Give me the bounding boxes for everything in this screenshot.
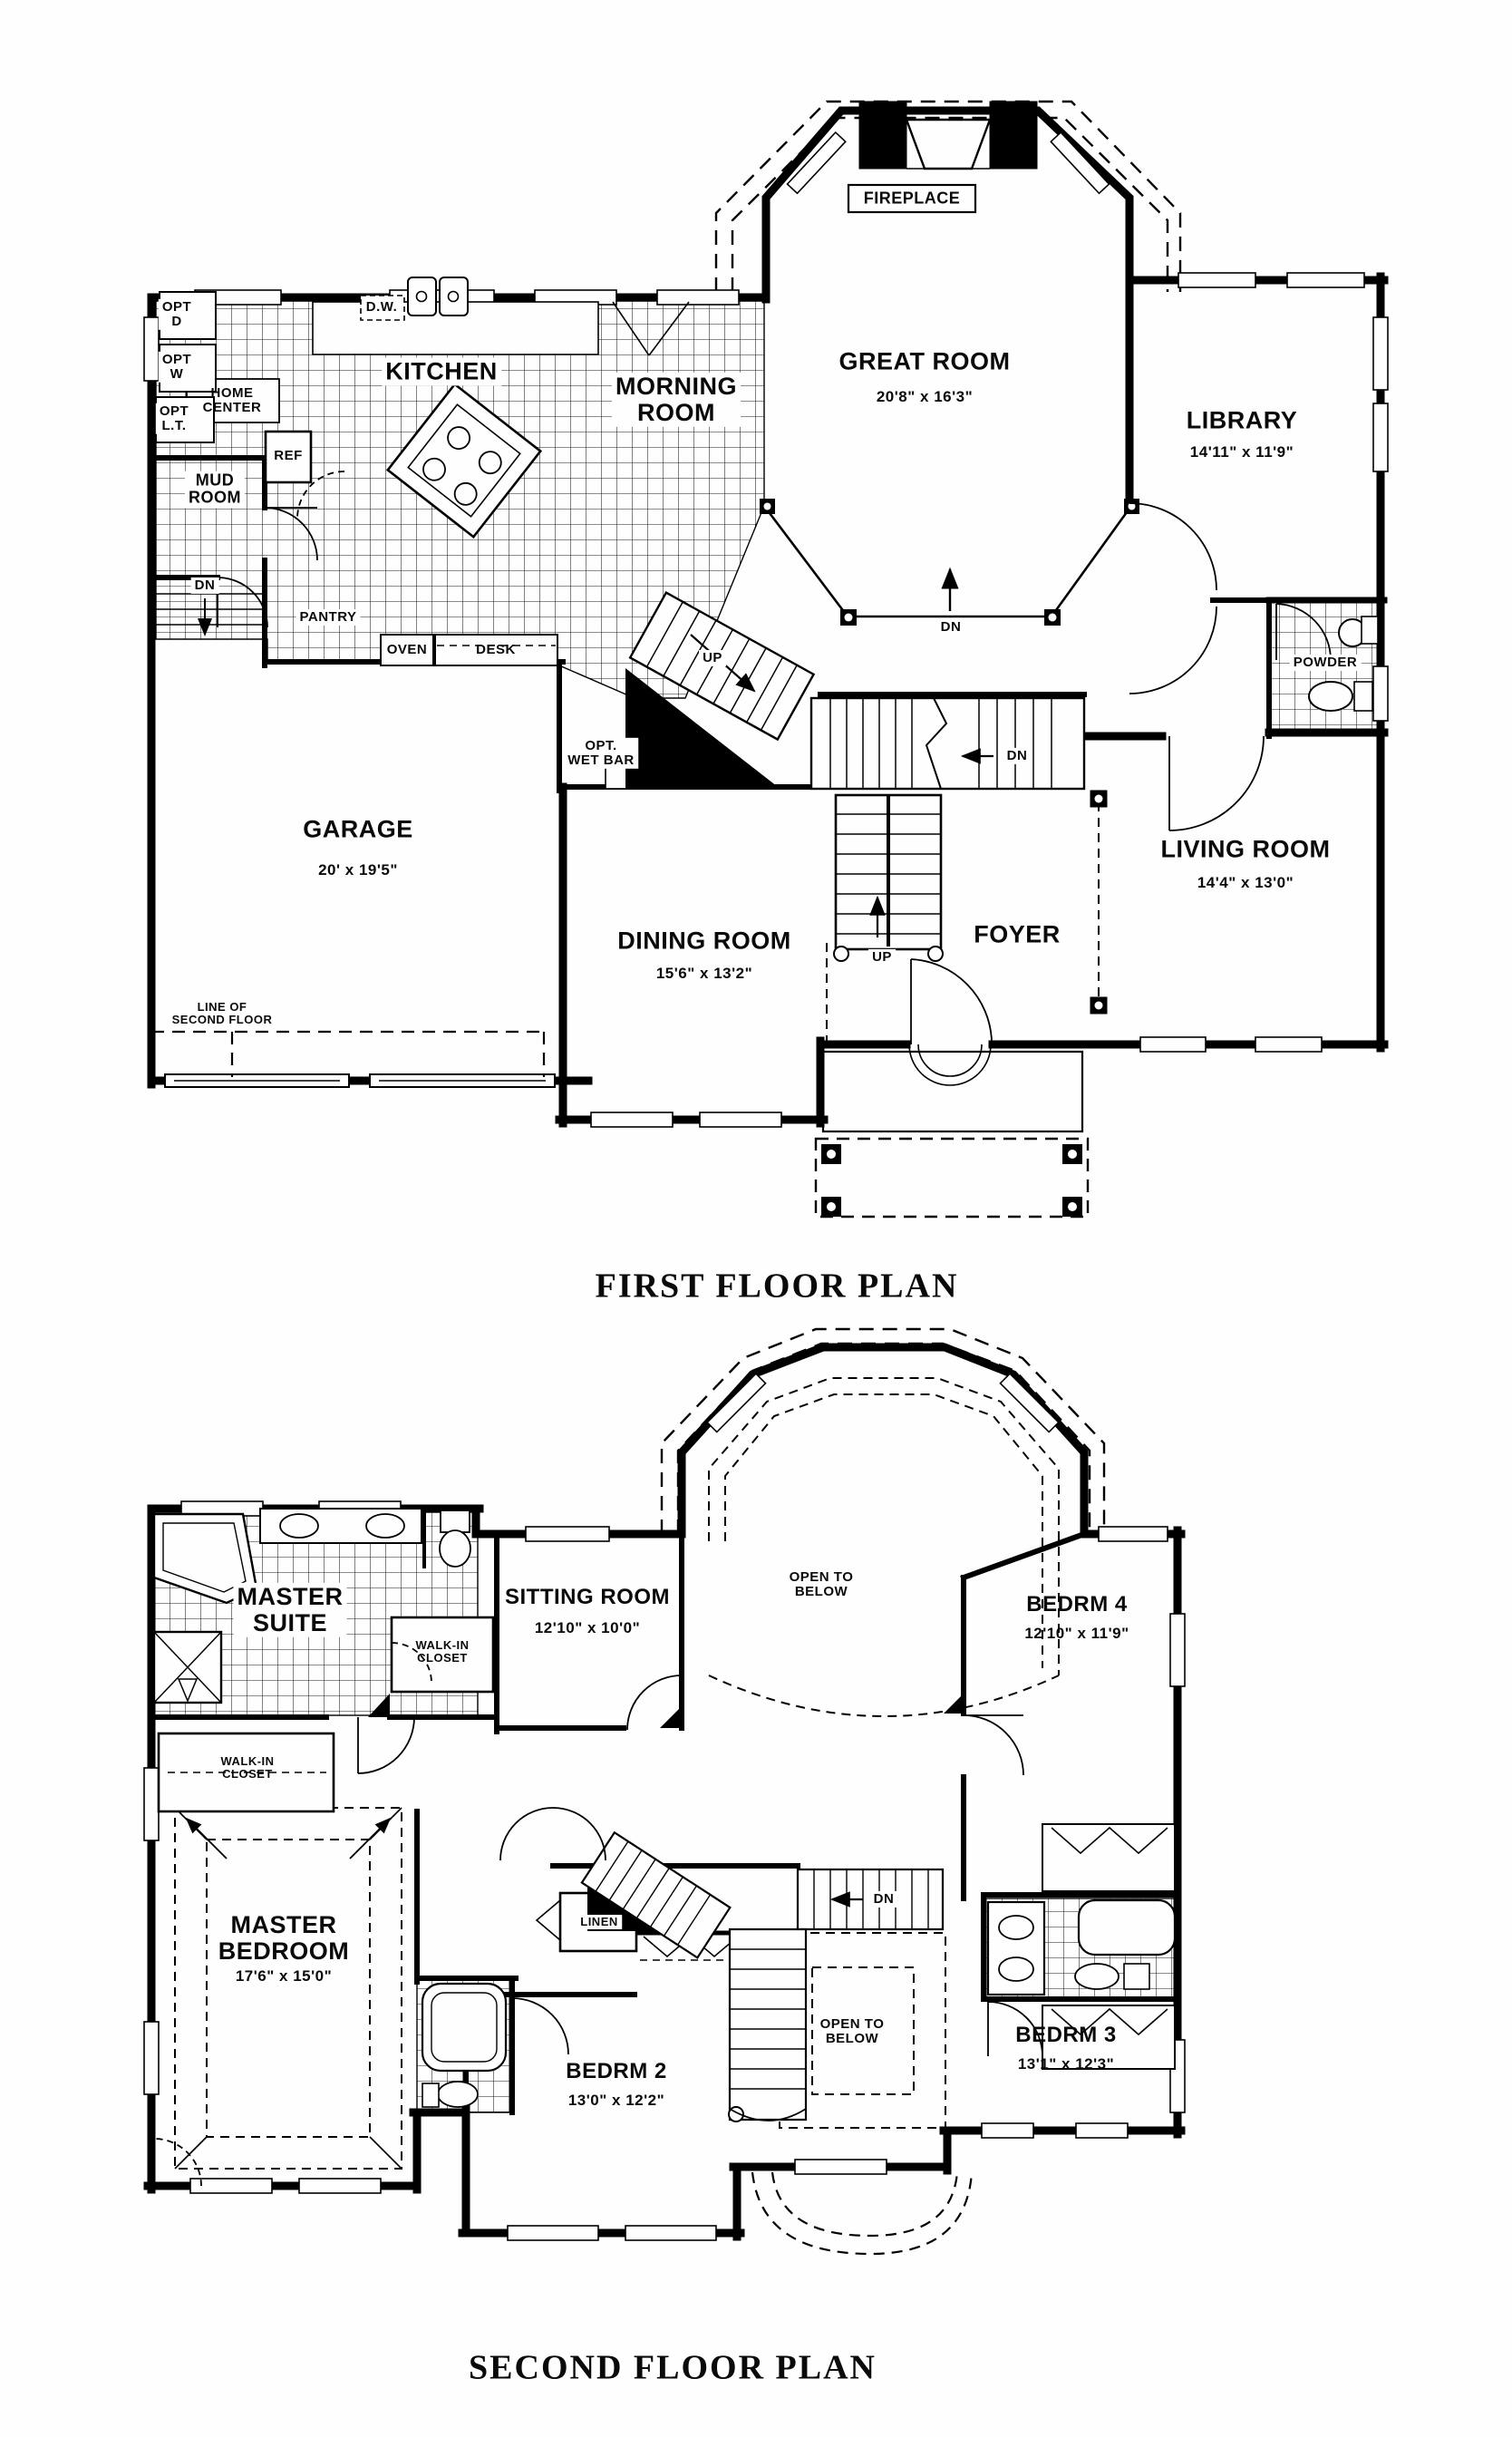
- label-opt-laundry-tub: OPT L.T.: [156, 403, 192, 434]
- label-dn-mud: DN: [191, 578, 219, 594]
- label-opt-dryer: OPT D: [159, 299, 195, 330]
- second-floor-plan-title: SECOND FLOOR PLAN: [469, 2349, 877, 2386]
- great-room-edge: [760, 499, 1139, 626]
- label-walk-in-closet-upper: WALK-IN CLOSET: [415, 1639, 469, 1665]
- label-great-room-dims: 20'8" x 16'3": [877, 389, 973, 405]
- label-master-bedroom-dims: 17'6" x 15'0": [236, 1968, 332, 1985]
- label-living-room-dims: 14'4" x 13'0": [1197, 875, 1294, 891]
- plan-linework: [0, 0, 1512, 2437]
- label-line-of-second-floor: LINE OF SECOND FLOOR: [169, 1000, 276, 1027]
- tray-ceiling: [175, 1808, 402, 2169]
- label-bedrm-3-dims: 13'1" x 12'3": [1018, 2056, 1114, 2073]
- label-sitting-room: SITTING ROOM: [505, 1586, 670, 1609]
- label-dining-room: DINING ROOM: [617, 927, 791, 954]
- label-great-room: GREAT ROOM: [839, 348, 1011, 374]
- second-floor-porch-dashes: [752, 2172, 972, 2254]
- label-powder: POWDER: [1290, 655, 1362, 671]
- label-pantry: PANTRY: [296, 609, 361, 626]
- label-open-to-below-great: OPEN TO BELOW: [790, 1570, 854, 1599]
- label-dining-room-dims: 15'6" x 13'2": [656, 966, 752, 982]
- label-desk: DESK: [476, 643, 516, 657]
- label-living-room: LIVING ROOM: [1161, 836, 1331, 862]
- label-mud-room: MUD ROOM: [185, 471, 245, 509]
- label-opt-washer: OPT W: [159, 352, 195, 383]
- label-up-back-stair: UP: [699, 650, 726, 666]
- label-bedrm-4-dims: 12'10" x 11'9": [1024, 1626, 1129, 1642]
- label-bedrm-3: BEDRM 3: [1015, 2024, 1117, 2047]
- label-dishwasher: D.W.: [366, 300, 398, 315]
- label-bedrm-2: BEDRM 2: [566, 2060, 667, 2083]
- first-floor-plan-title: FIRST FLOOR PLAN: [596, 1267, 959, 1305]
- label-garage-dims: 20' x 19'5": [318, 862, 398, 879]
- label-dn-back-stair: DN: [1003, 748, 1032, 764]
- label-morning-room: MORNING ROOM: [612, 373, 741, 427]
- floor-plan-sheet: OPT D OPT W OPT L.T. HOME CENTER D.W. KI…: [0, 0, 1512, 2437]
- label-foyer: FOYER: [974, 921, 1061, 947]
- label-linen: LINEN: [577, 1915, 622, 1929]
- label-library-dims: 14'11" x 11'9": [1190, 444, 1294, 461]
- label-bedrm-4: BEDRM 4: [1026, 1593, 1128, 1617]
- label-garage: GARAGE: [303, 816, 413, 842]
- label-fireplace: FIREPLACE: [864, 189, 961, 207]
- label-dn-second-floor: DN: [870, 1891, 898, 1908]
- label-dn-great-room: DN: [937, 619, 965, 636]
- front-porch: [816, 1044, 1088, 1217]
- label-refrigerator: REF: [274, 449, 303, 463]
- label-opt-wet-bar: OPT. WET BAR: [564, 738, 638, 769]
- living-room-colonnade: [1090, 791, 1107, 1014]
- label-library: LIBRARY: [1187, 407, 1298, 433]
- label-up-main-stair: UP: [868, 949, 896, 966]
- label-kitchen: KITCHEN: [382, 357, 501, 385]
- label-master-suite: MASTER SUITE: [234, 1583, 347, 1637]
- label-master-bedroom: MASTER BEDROOM: [218, 1912, 350, 1965]
- label-sitting-room-dims: 12'10" x 10'0": [535, 1620, 640, 1636]
- label-open-to-below-foyer: OPEN TO BELOW: [817, 2016, 888, 2047]
- second-floor-roof-dashes: [662, 1329, 1104, 1534]
- label-oven: OVEN: [387, 643, 428, 657]
- label-home-center: HOME CENTER: [203, 386, 262, 415]
- label-walk-in-closet-lower: WALK-IN CLOSET: [220, 1755, 274, 1781]
- label-bedrm-2-dims: 13'0" x 12'2": [568, 2092, 664, 2109]
